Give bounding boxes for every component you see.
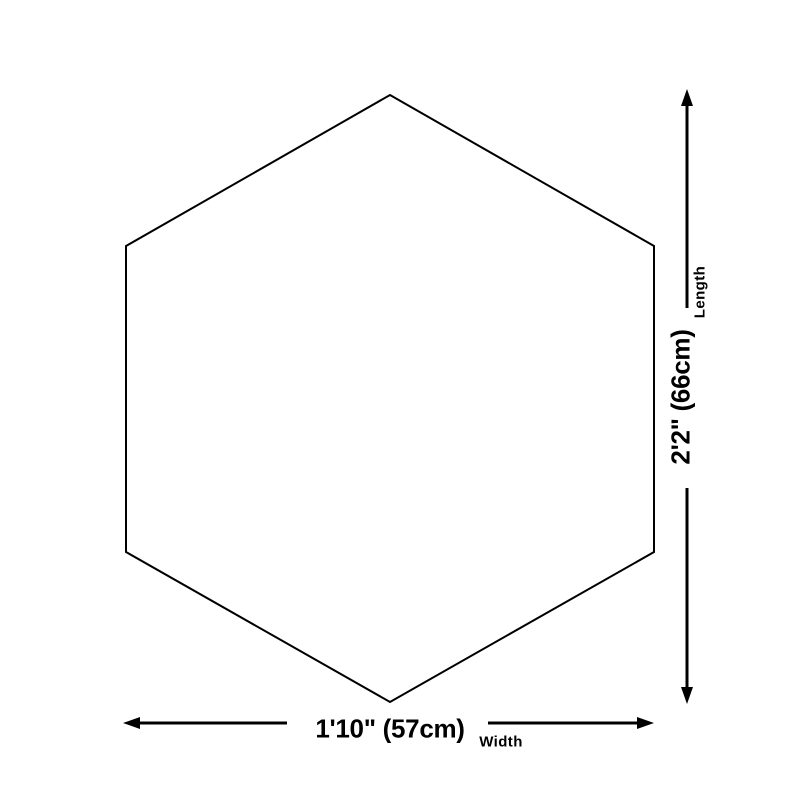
length-dimension-label: Length <box>692 266 709 318</box>
length-value-label: 2'2" (66cm) <box>666 329 697 464</box>
arrow-left-icon <box>123 717 140 729</box>
arrow-up-icon <box>681 89 693 106</box>
width-value-label: 1'10" (57cm) <box>315 714 464 745</box>
arrow-down-icon <box>681 687 693 704</box>
width-dimension-label: Width <box>479 734 523 751</box>
hexagon-outline <box>126 95 654 702</box>
arrow-right-icon <box>637 717 654 729</box>
dimension-diagram: 2'2" (66cm) Length 1'10" (57cm) Width <box>0 0 800 800</box>
